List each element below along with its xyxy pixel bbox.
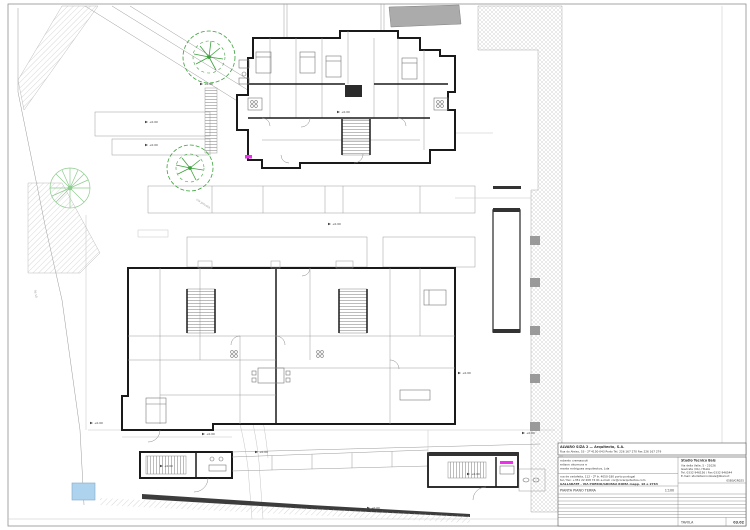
drawing-scale: 1:100	[665, 489, 674, 493]
highlight-marker-lower	[500, 461, 513, 464]
elevation-marker-label: +0.00	[341, 110, 350, 114]
studio-code: 05B0/GR025	[726, 479, 744, 483]
tavola-number: 03.02	[733, 521, 744, 525]
elevation-marker-label: +0.00	[164, 464, 173, 468]
tree-light	[50, 168, 90, 208]
upper-building	[237, 31, 455, 168]
light-well	[493, 210, 520, 332]
lower-building	[122, 261, 455, 442]
elevation-marker-label: +0.00	[259, 450, 268, 454]
tavola-label: TAVOLA	[680, 521, 694, 525]
stair-core	[342, 119, 370, 155]
elevation-marker-label: +0.00	[471, 472, 480, 476]
site-plan-svg: via privata 36.10 +0.00+0.00+0.00+0.00+0…	[0, 0, 750, 530]
neighbor-roof	[389, 5, 461, 27]
studio-name: Studio Tecnico Bais	[681, 459, 716, 463]
elevation-marker-label: +0.00	[204, 82, 213, 86]
elevation-marker-label: +0.00	[371, 506, 380, 510]
elevation-marker-label: +0.00	[149, 120, 158, 124]
elevation-marker-label: +0.00	[206, 432, 215, 436]
elevation-marker-label: +0.00	[526, 431, 535, 435]
drawing-sheet: via privata 36.10 +0.00+0.00+0.00+0.00+0…	[0, 0, 750, 530]
collaborator-3: marta rodrigues arquitectos, Lda	[560, 467, 609, 471]
studio-email: E-mail: studiotecnicobais@libero.it	[681, 474, 730, 478]
highlight-marker-upper	[245, 155, 252, 159]
stair-core-east	[339, 289, 367, 333]
stair-core-west	[187, 289, 215, 333]
exterior-stair	[205, 88, 217, 153]
elevation-marker-label: +0.00	[462, 371, 471, 375]
elevation-marker-label: +0.00	[332, 222, 341, 226]
architect-address: Rua do Aleixo, 53 - 2º 4150-043 Porto Te…	[560, 449, 661, 453]
drawing-title: PIANTA PIANO TERRA	[560, 489, 597, 493]
project-title: GALLARATE - VIA POERIO/GROSSA ROMA mapp.…	[560, 482, 658, 486]
elevation-marker-label: +0.00	[94, 421, 103, 425]
water-feature	[72, 483, 95, 500]
elevator-shaft	[345, 85, 362, 97]
elevation-marker-label: +0.00	[149, 143, 158, 147]
architect-name: ALVARO SIZA 2 — Arquitecto, S.A.	[560, 445, 624, 449]
